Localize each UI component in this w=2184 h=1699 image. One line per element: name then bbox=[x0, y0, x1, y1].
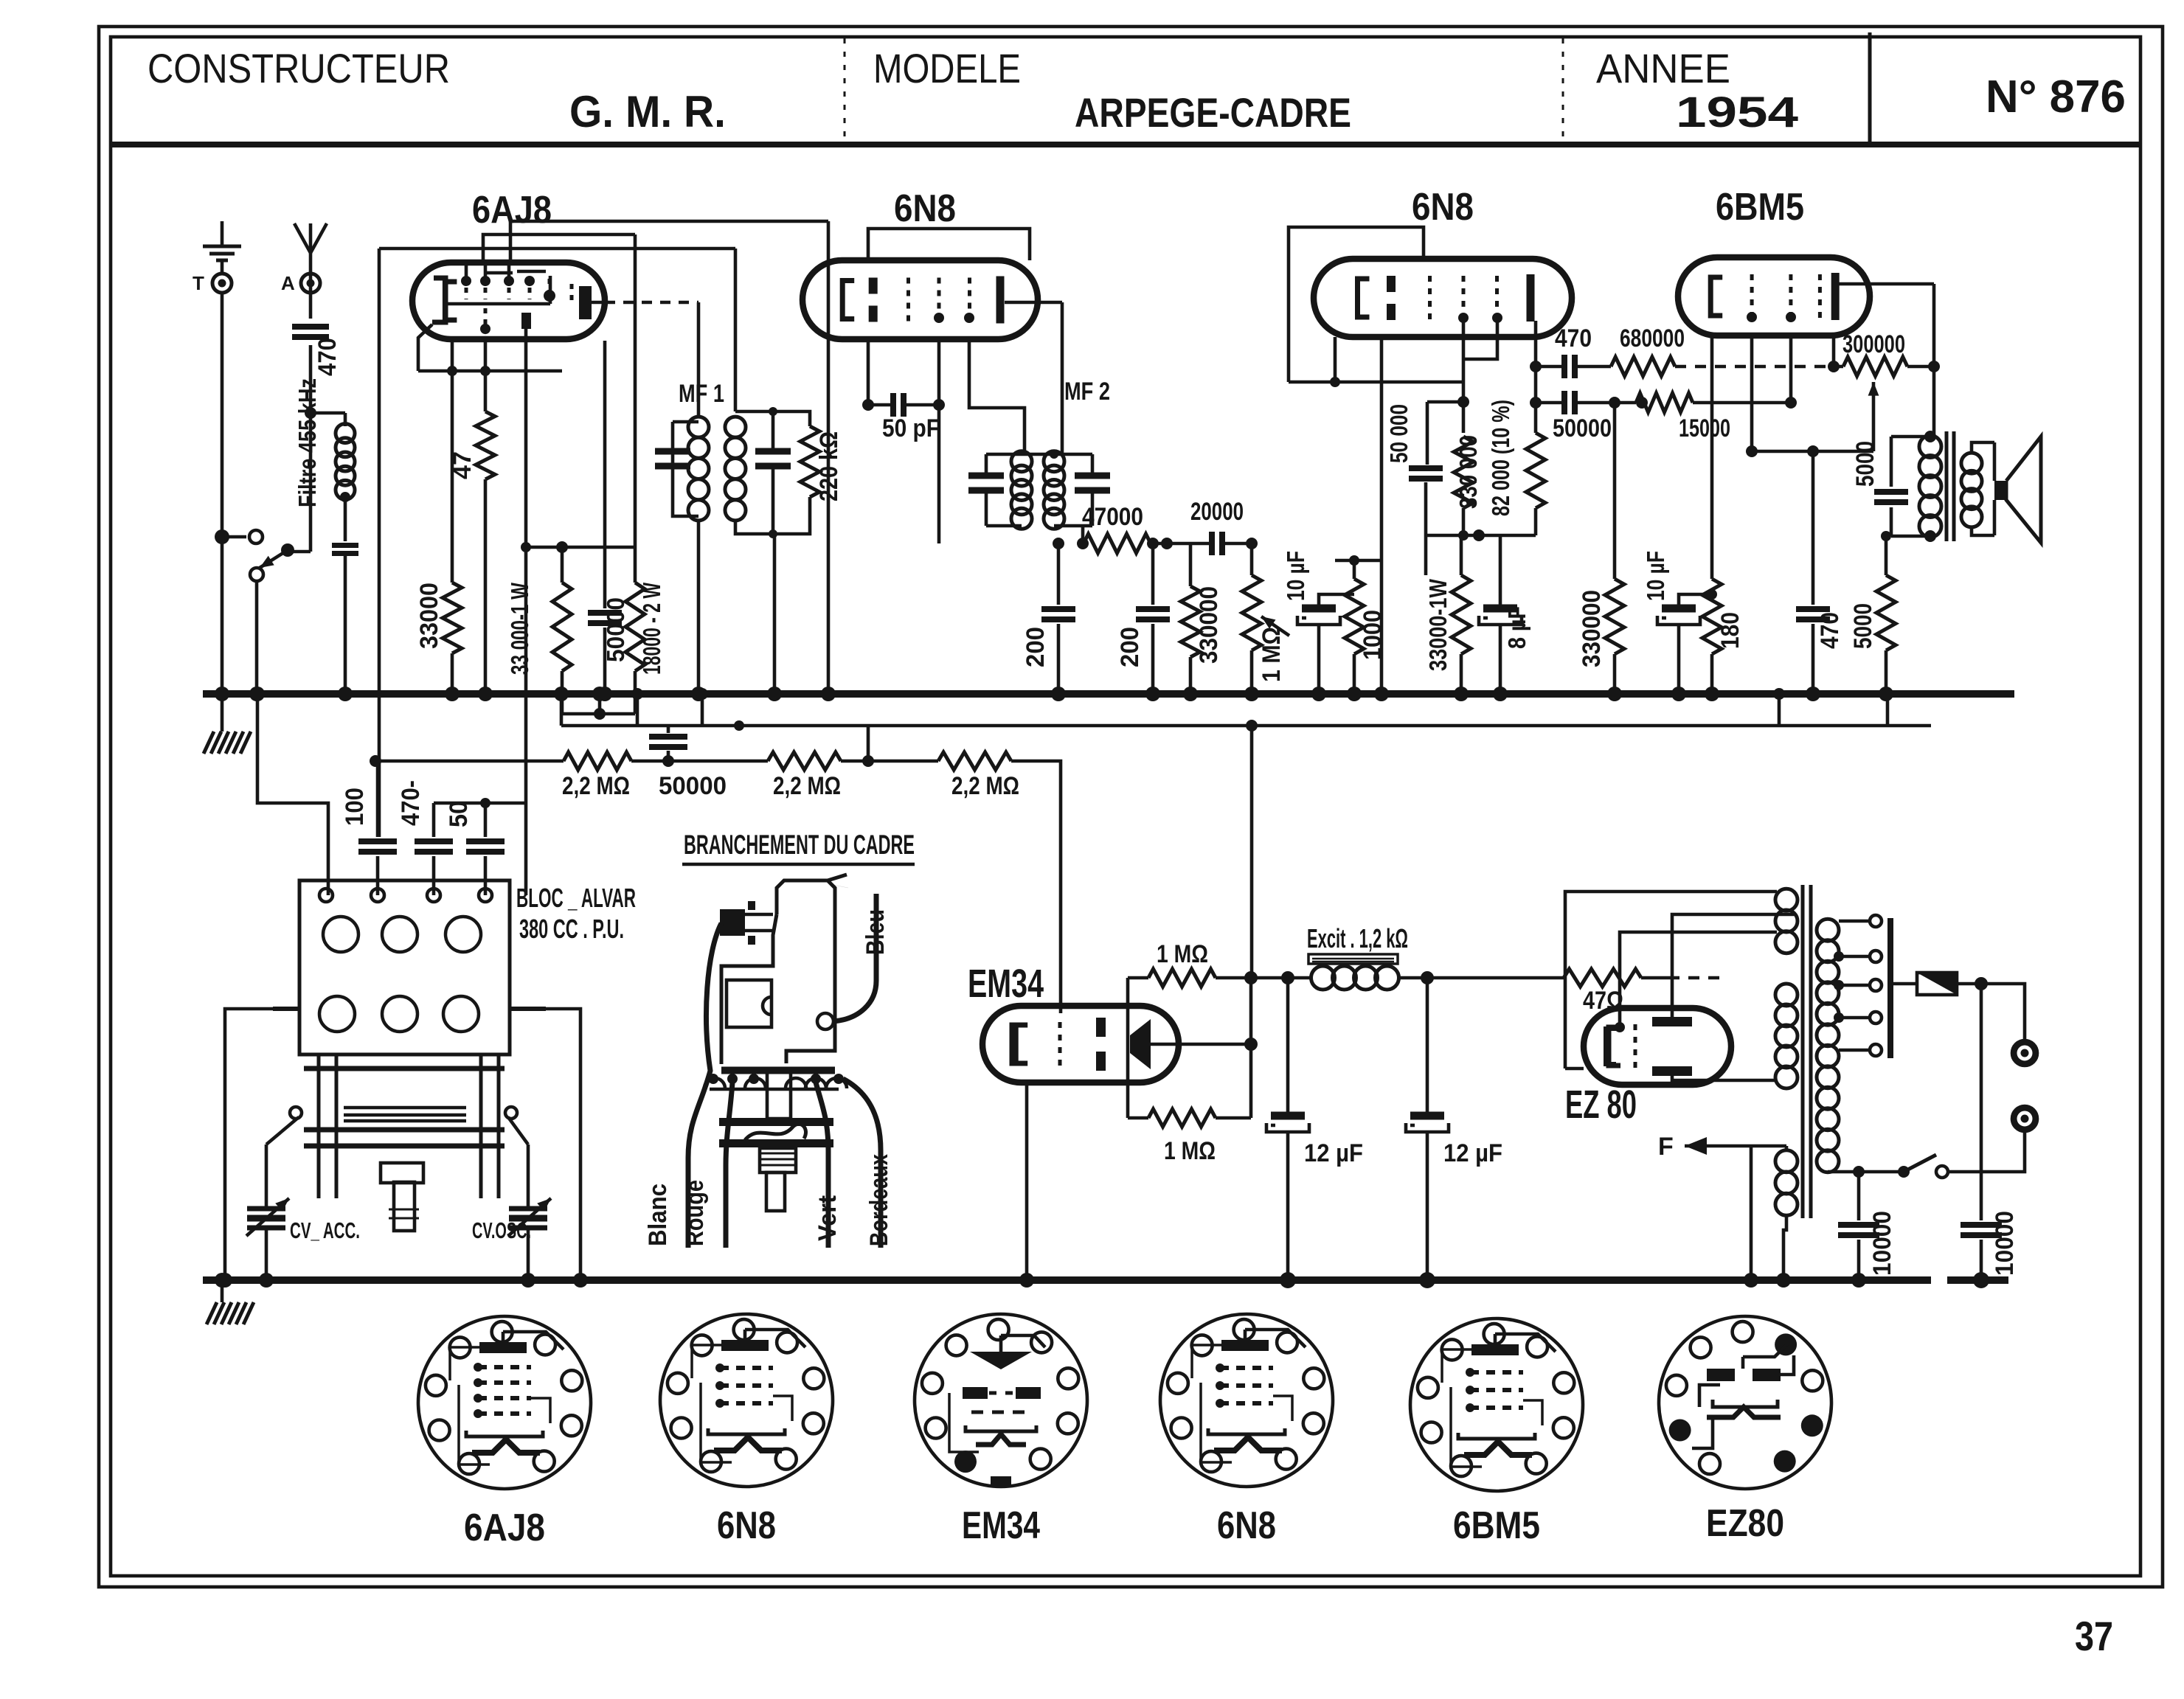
svg-text:MF 2: MF 2 bbox=[1064, 378, 1110, 406]
svg-text:15000: 15000 bbox=[1679, 414, 1730, 442]
svg-text:6N8: 6N8 bbox=[894, 187, 956, 230]
svg-text:Blanc: Blanc bbox=[644, 1184, 672, 1246]
svg-text:2,2 MΩ: 2,2 MΩ bbox=[562, 772, 630, 800]
svg-text:50 pF: 50 pF bbox=[882, 414, 940, 442]
svg-text:8 µF: 8 µF bbox=[1503, 606, 1530, 649]
svg-text:CV_ ACC.: CV_ ACC. bbox=[290, 1217, 360, 1243]
svg-text:200: 200 bbox=[1022, 627, 1050, 667]
svg-text:6BM5: 6BM5 bbox=[1453, 1504, 1540, 1547]
svg-text:300000: 300000 bbox=[1842, 330, 1905, 358]
svg-text:12 µF: 12 µF bbox=[1304, 1139, 1363, 1167]
svg-text:10 µF: 10 µF bbox=[1282, 551, 1309, 601]
svg-text:G. M. R.: G. M. R. bbox=[569, 87, 726, 136]
svg-text:1 MΩ: 1 MΩ bbox=[1258, 627, 1286, 682]
svg-text:EZ 80: EZ 80 bbox=[1565, 1083, 1637, 1127]
svg-text:ANNEE: ANNEE bbox=[1596, 45, 1730, 91]
svg-text:A: A bbox=[281, 272, 295, 294]
svg-text:1 MΩ: 1 MΩ bbox=[1157, 940, 1208, 968]
svg-text:470: 470 bbox=[313, 338, 342, 376]
svg-text:CV.OSC.: CV.OSC. bbox=[472, 1217, 531, 1243]
svg-text:1000: 1000 bbox=[1359, 610, 1387, 660]
svg-text:50000: 50000 bbox=[659, 772, 727, 800]
svg-text:2,2 MΩ: 2,2 MΩ bbox=[951, 772, 1019, 800]
svg-text:6N8: 6N8 bbox=[1412, 186, 1474, 229]
svg-text:MF 1: MF 1 bbox=[679, 380, 724, 408]
svg-text:EM34: EM34 bbox=[962, 1504, 1040, 1547]
svg-text:10 µF: 10 µF bbox=[1642, 551, 1669, 601]
svg-text:6BM5: 6BM5 bbox=[1716, 186, 1804, 229]
svg-text:Bordeaux: Bordeaux bbox=[865, 1154, 893, 1246]
svg-text:CONSTRUCTEUR: CONSTRUCTEUR bbox=[148, 45, 450, 91]
svg-text:1 MΩ: 1 MΩ bbox=[1164, 1137, 1216, 1165]
svg-text:200: 200 bbox=[1116, 627, 1144, 667]
svg-text:12 µF: 12 µF bbox=[1443, 1139, 1502, 1167]
svg-text:10000: 10000 bbox=[1868, 1211, 1896, 1276]
svg-text:47: 47 bbox=[448, 451, 476, 479]
svg-text:N° 876: N° 876 bbox=[1986, 72, 2126, 122]
svg-text:T: T bbox=[193, 272, 204, 294]
svg-text:50: 50 bbox=[445, 801, 473, 827]
svg-text:33 000-1 W: 33 000-1 W bbox=[506, 582, 533, 675]
svg-text:Excit . 1,2 kΩ: Excit . 1,2 kΩ bbox=[1307, 923, 1408, 953]
svg-text:380 CC . P.U.: 380 CC . P.U. bbox=[519, 914, 624, 944]
svg-text:33000-1W: 33000-1W bbox=[1424, 578, 1452, 671]
svg-text:470: 470 bbox=[1816, 612, 1844, 649]
svg-text:5000: 5000 bbox=[1851, 441, 1879, 487]
svg-text:330000: 330000 bbox=[1578, 590, 1606, 667]
svg-text:1954: 1954 bbox=[1676, 88, 1798, 136]
svg-text:BLOC _ ALVAR: BLOC _ ALVAR bbox=[516, 883, 636, 913]
svg-text:50 000: 50 000 bbox=[1385, 404, 1412, 463]
svg-text:5000: 5000 bbox=[1849, 603, 1877, 649]
svg-text:Bleu: Bleu bbox=[862, 909, 890, 955]
svg-text:180: 180 bbox=[1716, 612, 1744, 649]
svg-text:6N8: 6N8 bbox=[717, 1504, 776, 1547]
svg-text:Vert: Vert bbox=[814, 1195, 842, 1241]
svg-text:47000: 47000 bbox=[1082, 503, 1143, 531]
svg-text:470: 470 bbox=[1555, 324, 1592, 352]
svg-text:18000 - 2 W: 18000 - 2 W bbox=[638, 582, 665, 675]
svg-text:Filtre 455 kHz: Filtre 455 kHz bbox=[294, 378, 321, 507]
svg-text:EZ80: EZ80 bbox=[1706, 1502, 1784, 1545]
svg-text:37: 37 bbox=[2075, 1613, 2113, 1659]
svg-text:F: F bbox=[1658, 1133, 1674, 1161]
svg-text:BRANCHEMENT DU CADRE: BRANCHEMENT DU CADRE bbox=[684, 830, 915, 860]
svg-text:Rouge: Rouge bbox=[681, 1180, 709, 1246]
svg-text:100: 100 bbox=[341, 788, 369, 826]
svg-text:EM34: EM34 bbox=[968, 962, 1044, 1006]
svg-text:330 000: 330 000 bbox=[1455, 435, 1482, 509]
svg-text:33000: 33000 bbox=[415, 583, 443, 649]
svg-text:470-: 470- bbox=[397, 780, 425, 826]
svg-text:82 000 (10 %): 82 000 (10 %) bbox=[1487, 400, 1514, 516]
svg-text:2,2 MΩ: 2,2 MΩ bbox=[773, 772, 841, 800]
svg-text:680000: 680000 bbox=[1620, 324, 1685, 352]
svg-text:20000: 20000 bbox=[1190, 498, 1244, 526]
svg-text:50000: 50000 bbox=[1553, 414, 1612, 442]
svg-text:MODELE: MODELE bbox=[873, 45, 1021, 91]
svg-text:330000: 330000 bbox=[1195, 586, 1223, 664]
svg-text:6AJ8: 6AJ8 bbox=[464, 1507, 545, 1549]
svg-text:ARPEGE-CADRE: ARPEGE-CADRE bbox=[1075, 89, 1351, 136]
svg-text:10000: 10000 bbox=[1991, 1211, 2019, 1276]
svg-text:6N8: 6N8 bbox=[1217, 1504, 1276, 1547]
